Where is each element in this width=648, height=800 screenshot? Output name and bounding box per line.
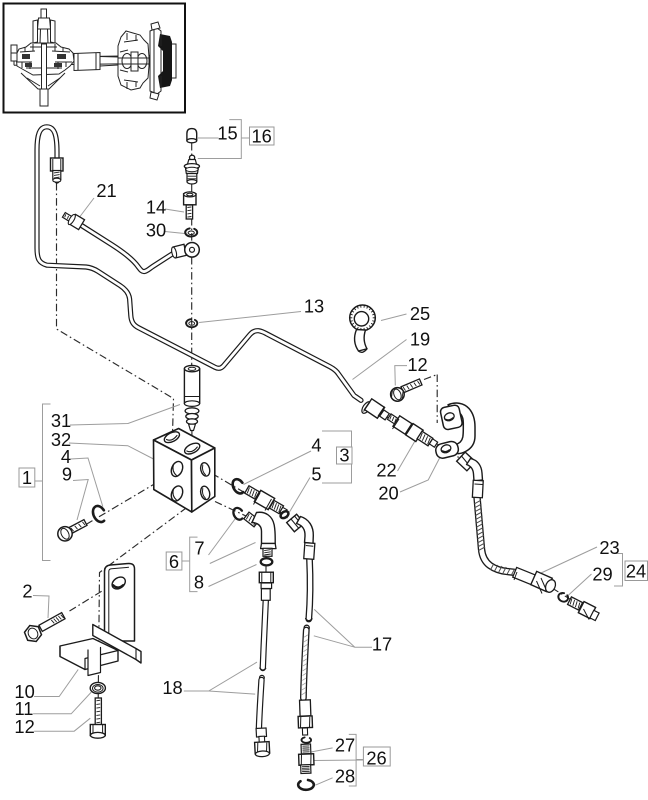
svg-text:23: 23 <box>599 537 619 558</box>
svg-text:25: 25 <box>410 303 430 324</box>
svg-text:28: 28 <box>335 766 355 787</box>
svg-text:8: 8 <box>194 572 204 593</box>
svg-text:13: 13 <box>304 296 324 317</box>
svg-text:29: 29 <box>592 564 612 585</box>
svg-text:18: 18 <box>162 677 182 698</box>
svg-text:9: 9 <box>62 464 72 485</box>
svg-text:6: 6 <box>169 551 179 572</box>
svg-text:19: 19 <box>410 329 430 350</box>
svg-text:22: 22 <box>376 460 396 481</box>
svg-text:20: 20 <box>378 483 398 504</box>
svg-text:12: 12 <box>407 354 427 375</box>
svg-text:12: 12 <box>14 716 34 737</box>
svg-text:27: 27 <box>335 735 355 756</box>
svg-text:4: 4 <box>311 435 321 456</box>
svg-text:26: 26 <box>366 748 386 769</box>
svg-text:5: 5 <box>311 464 321 485</box>
svg-text:17: 17 <box>372 634 392 655</box>
svg-text:2: 2 <box>22 581 32 602</box>
svg-text:15: 15 <box>217 123 237 144</box>
svg-text:21: 21 <box>96 180 116 201</box>
svg-text:1: 1 <box>22 467 32 488</box>
svg-text:24: 24 <box>626 561 646 582</box>
svg-text:30: 30 <box>146 220 166 241</box>
svg-text:31: 31 <box>51 410 71 431</box>
svg-text:14: 14 <box>146 197 166 218</box>
svg-text:16: 16 <box>252 126 272 147</box>
svg-text:7: 7 <box>194 538 204 559</box>
svg-text:3: 3 <box>339 445 349 466</box>
